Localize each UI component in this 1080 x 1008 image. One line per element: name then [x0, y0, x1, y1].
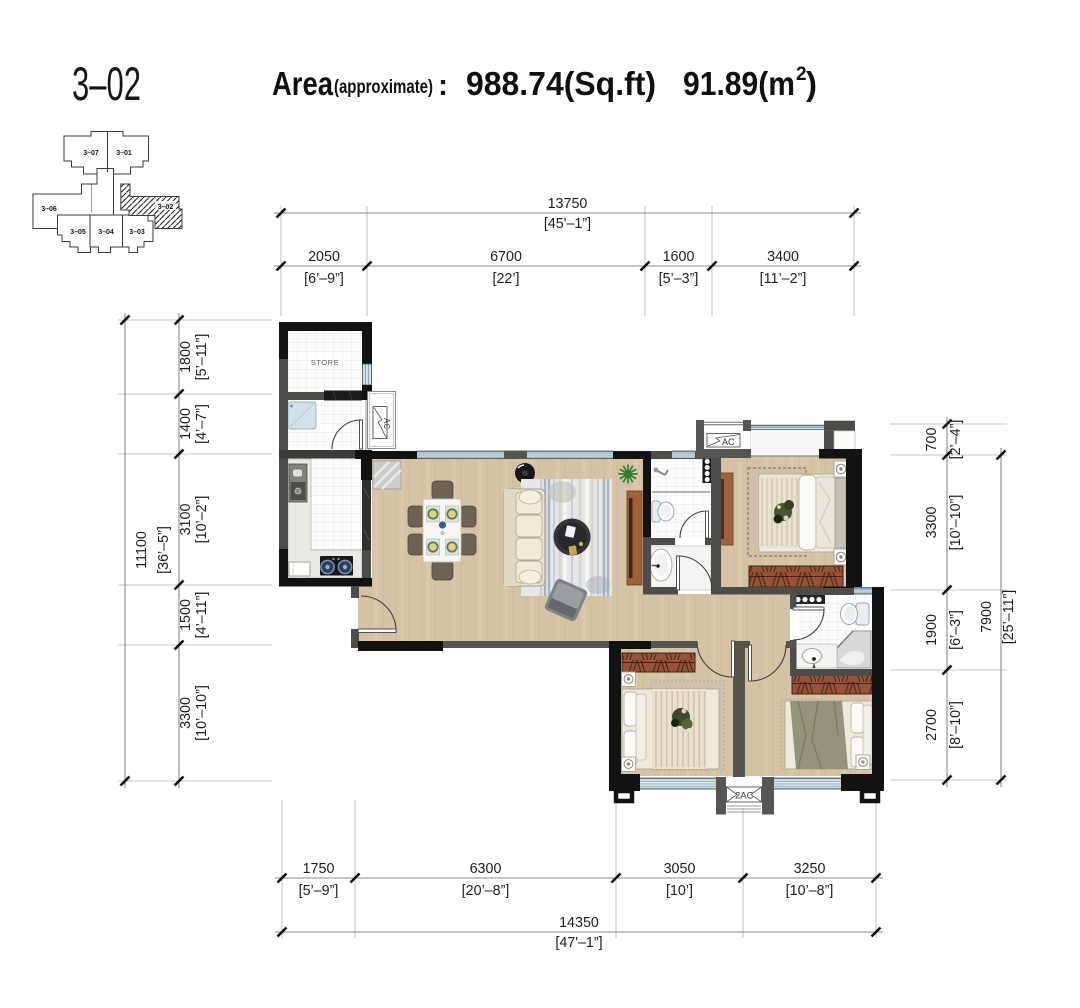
svg-text:7900: 7900: [979, 601, 995, 633]
svg-text:700: 700: [924, 428, 940, 452]
svg-text:AC: AC: [382, 418, 391, 429]
svg-text:[6’–3”]: [6’–3”]: [948, 610, 964, 650]
svg-text:[8’–10”]: [8’–10”]: [948, 701, 964, 749]
svg-text:3100: 3100: [178, 504, 194, 536]
svg-text:1400: 1400: [178, 408, 194, 440]
svg-text:STORE: STORE: [311, 358, 339, 367]
svg-text:3–06: 3–06: [41, 206, 57, 213]
svg-text:[11’–2”]: [11’–2”]: [760, 271, 807, 287]
svg-text:(approximate): (approximate): [334, 77, 433, 98]
svg-text:[10’]: [10’]: [666, 883, 693, 899]
svg-text:3050: 3050: [664, 861, 696, 877]
svg-text:2700: 2700: [924, 709, 940, 741]
svg-text:1500: 1500: [178, 599, 194, 631]
svg-text:Area: Area: [272, 65, 334, 102]
svg-text:11100: 11100: [134, 531, 150, 569]
svg-text:[22’]: [22’]: [492, 271, 519, 287]
svg-text:[20’–8”]: [20’–8”]: [462, 883, 510, 899]
svg-text:3–03: 3–03: [129, 229, 145, 236]
svg-text:3250: 3250: [794, 861, 826, 877]
svg-text:3300: 3300: [178, 697, 194, 729]
svg-text:[6’–9”]: [6’–9”]: [304, 271, 344, 287]
svg-text:3–05: 3–05: [70, 229, 86, 236]
svg-text:[36’–5”]: [36’–5”]: [156, 526, 172, 574]
svg-text:[45'–1”]: [45'–1”]: [544, 216, 591, 232]
svg-text:1900: 1900: [924, 614, 940, 646]
svg-text:[47'–1”]: [47'–1”]: [555, 935, 602, 951]
svg-text:1750: 1750: [303, 861, 335, 877]
svg-text:2050: 2050: [308, 249, 340, 265]
svg-text:[2’–4”]: [2’–4”]: [948, 420, 964, 460]
svg-text:14350: 14350: [559, 915, 599, 931]
svg-text:6700: 6700: [490, 249, 522, 265]
svg-text:[25’–11”]: [25’–11”]: [1001, 590, 1017, 645]
svg-text:3300: 3300: [924, 507, 940, 539]
svg-text:AC: AC: [722, 437, 735, 447]
svg-text:3–04: 3–04: [98, 229, 114, 236]
svg-text:[10’–10”]: [10’–10”]: [194, 685, 210, 741]
svg-text:[10’–2”]: [10’–2”]: [194, 496, 210, 544]
svg-text:1600: 1600: [663, 249, 695, 265]
svg-text:[4’–7”]: [4’–7”]: [194, 404, 210, 444]
svg-text:[5’–11”]: [5’–11”]: [194, 334, 210, 381]
svg-text:): ): [806, 65, 817, 102]
svg-text:988.74(Sq.ft): 988.74(Sq.ft): [466, 65, 656, 102]
svg-text:[5’–9”]: [5’–9”]: [299, 883, 339, 899]
svg-text:3–07: 3–07: [83, 150, 99, 157]
svg-text:3–01: 3–01: [116, 150, 132, 157]
svg-text:3400: 3400: [767, 249, 799, 265]
svg-text:2: 2: [796, 64, 807, 85]
svg-text:[10’–8”]: [10’–8”]: [786, 883, 834, 899]
svg-text::: :: [438, 69, 448, 102]
svg-text:[5’–3”]: [5’–3”]: [659, 271, 699, 287]
svg-text:3–02: 3–02: [158, 204, 174, 211]
svg-text:91.89(m: 91.89(m: [683, 65, 795, 102]
svg-text:2AC: 2AC: [735, 791, 754, 802]
svg-text:13750: 13750: [548, 196, 588, 212]
svg-text:[10’–10”]: [10’–10”]: [948, 495, 964, 551]
svg-text:6300: 6300: [470, 861, 502, 877]
svg-text:3–02: 3–02: [72, 57, 141, 110]
svg-text:[4’–11”]: [4’–11”]: [194, 592, 210, 639]
svg-text:1800: 1800: [178, 341, 194, 373]
